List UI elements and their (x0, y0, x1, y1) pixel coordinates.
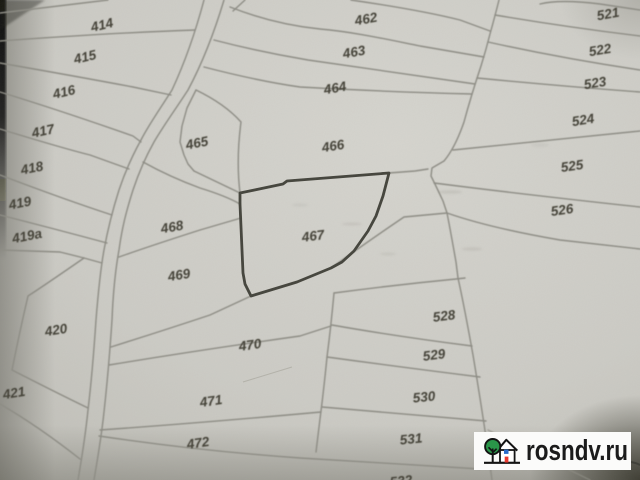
svg-text:rosndv.ru: rosndv.ru (526, 435, 628, 466)
